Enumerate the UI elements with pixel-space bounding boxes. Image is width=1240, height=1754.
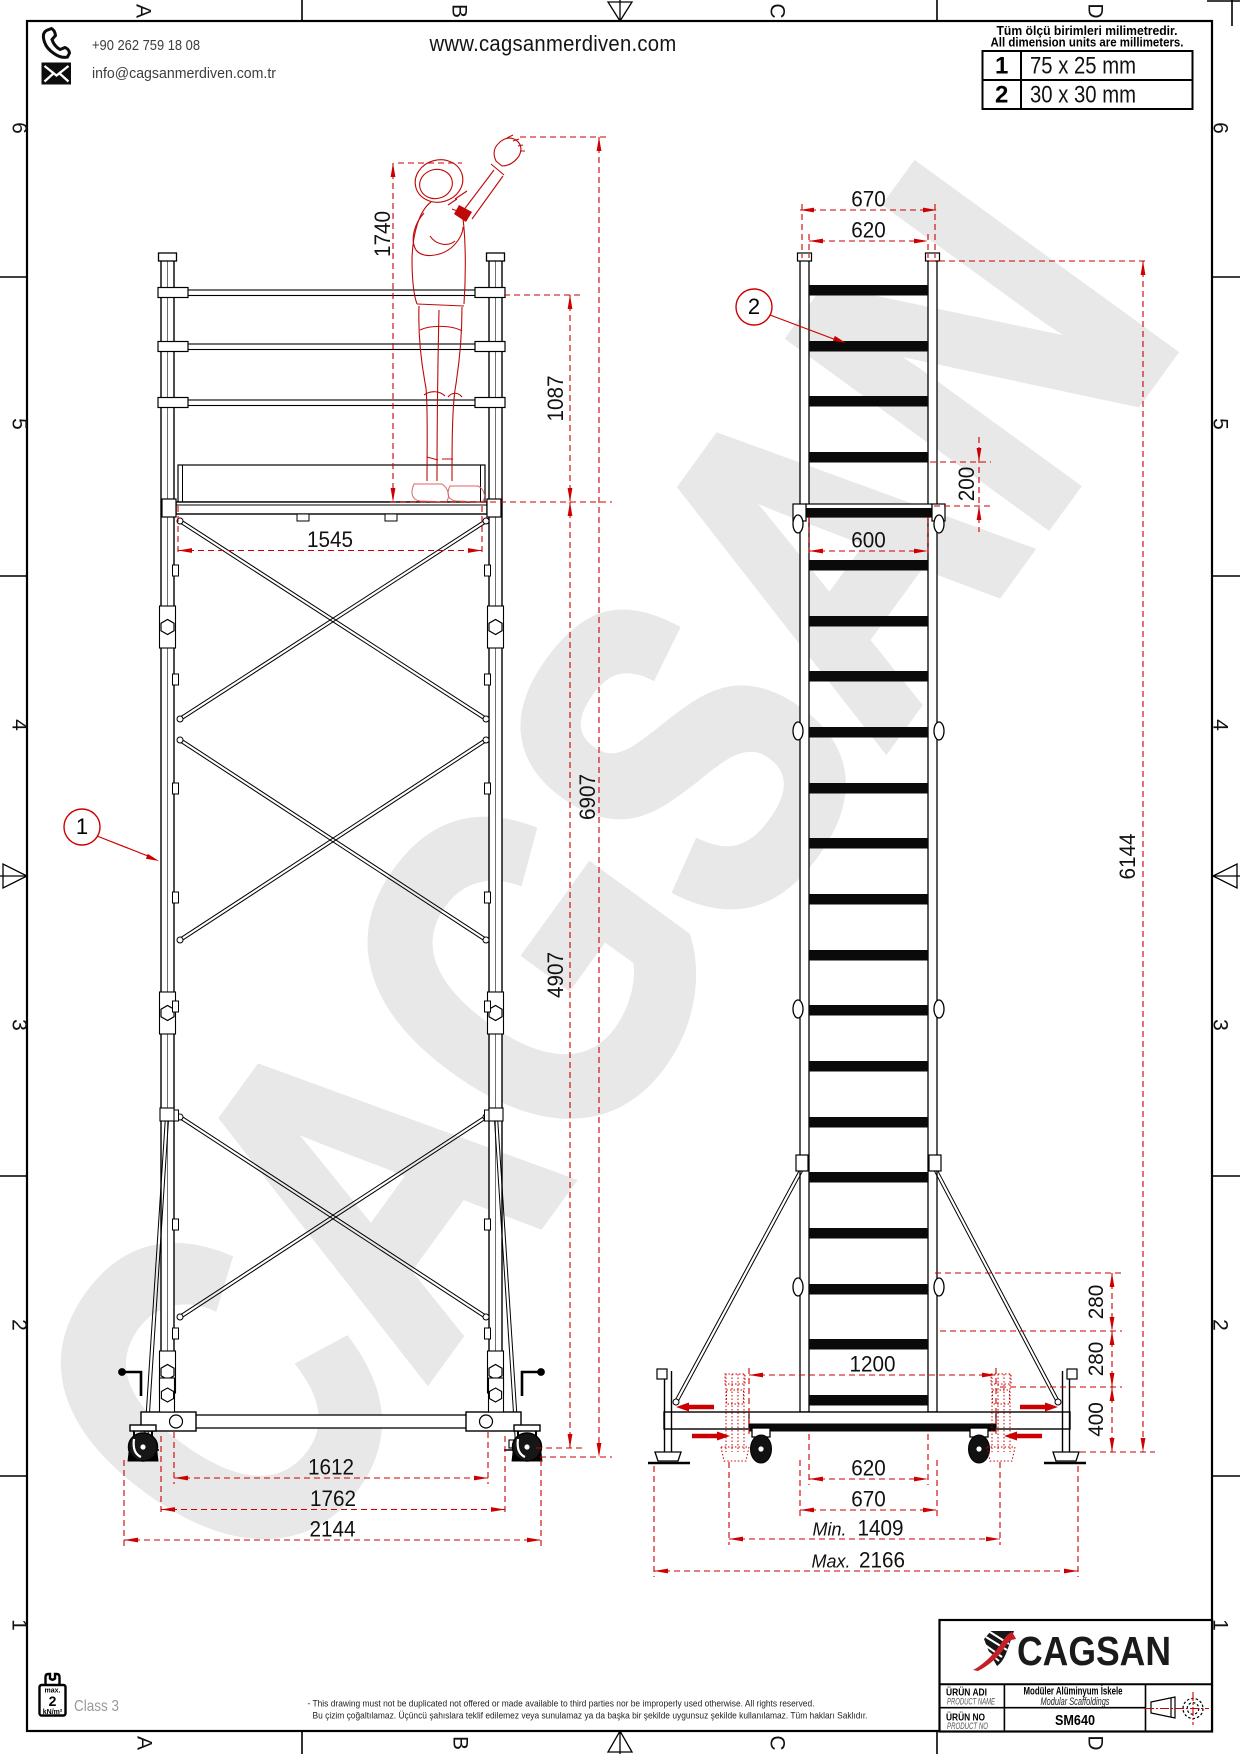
- svg-text:- This drawing must not be dup: - This drawing must not be duplicated no…: [308, 1699, 815, 1710]
- svg-text:2: 2: [8, 1319, 31, 1331]
- svg-text:1762: 1762: [310, 1486, 356, 1511]
- svg-text:SM640: SM640: [1055, 1713, 1095, 1729]
- svg-text:6144: 6144: [1115, 834, 1140, 880]
- svg-text:3: 3: [1209, 1019, 1232, 1031]
- svg-text:Bu çizim çoğaltılamaz. Üçüncü: Bu çizim çoğaltılamaz. Üçüncü şahıslara …: [313, 1711, 868, 1722]
- svg-text:All dimension units are millim: All dimension units are millimeters.: [991, 35, 1184, 50]
- svg-text:+90 262 759 18 08: +90 262 759 18 08: [92, 37, 200, 54]
- svg-text:670: 670: [851, 1487, 886, 1512]
- svg-text:CAGSAN: CAGSAN: [1017, 1628, 1171, 1674]
- svg-text:Class 3: Class 3: [74, 1698, 119, 1715]
- svg-text:PRODUCT NO: PRODUCT NO: [947, 1721, 988, 1731]
- svg-text:6: 6: [1209, 122, 1232, 134]
- svg-text:280: 280: [1085, 1342, 1108, 1377]
- svg-text:PRODUCT NAME: PRODUCT NAME: [947, 1696, 996, 1706]
- svg-text:1545: 1545: [307, 527, 353, 552]
- svg-text:1: 1: [8, 1619, 31, 1631]
- svg-text:1: 1: [995, 53, 1008, 80]
- svg-text:2: 2: [748, 294, 760, 319]
- svg-text:2166: 2166: [859, 1548, 905, 1573]
- svg-text:D: D: [1084, 3, 1107, 18]
- svg-text:C: C: [766, 3, 789, 18]
- svg-text:620: 620: [851, 1456, 886, 1481]
- svg-text:1740: 1740: [370, 211, 395, 257]
- svg-text:Max.: Max.: [811, 1552, 850, 1572]
- svg-text:30 x 30 mm: 30 x 30 mm: [1030, 82, 1136, 109]
- svg-text:75 x 25 mm: 75 x 25 mm: [1030, 53, 1136, 80]
- svg-text:2: 2: [1209, 1319, 1232, 1331]
- svg-text:B: B: [448, 4, 471, 18]
- svg-text:1409: 1409: [858, 1516, 904, 1541]
- svg-text:2: 2: [49, 1693, 57, 1709]
- svg-text:6: 6: [8, 122, 31, 134]
- svg-text:kN/m²: kN/m²: [43, 1709, 63, 1716]
- svg-text:1: 1: [76, 814, 88, 839]
- svg-text:A: A: [133, 1736, 156, 1750]
- svg-text:Min.: Min.: [812, 1520, 846, 1540]
- svg-text:1200: 1200: [850, 1352, 896, 1377]
- svg-text:600: 600: [851, 528, 886, 553]
- svg-text:1087: 1087: [543, 376, 568, 422]
- svg-text:2144: 2144: [310, 1517, 356, 1542]
- svg-text:C: C: [766, 1735, 789, 1750]
- svg-text:400: 400: [1085, 1402, 1108, 1437]
- svg-text:5: 5: [1209, 418, 1232, 430]
- svg-text:4: 4: [1209, 719, 1232, 731]
- svg-text:D: D: [1084, 1735, 1107, 1750]
- svg-text:B: B: [449, 1736, 472, 1750]
- svg-text:6907: 6907: [575, 774, 600, 820]
- svg-text:670: 670: [851, 187, 886, 212]
- svg-text:620: 620: [851, 218, 886, 243]
- svg-text:1612: 1612: [308, 1455, 354, 1480]
- svg-text:5: 5: [8, 418, 31, 430]
- svg-text:2: 2: [995, 82, 1008, 109]
- svg-text:3: 3: [8, 1019, 31, 1031]
- svg-text:280: 280: [1085, 1285, 1108, 1320]
- svg-text:A: A: [132, 4, 155, 18]
- svg-text:www.cagsanmerdiven.com: www.cagsanmerdiven.com: [429, 31, 677, 56]
- svg-text:Modular Scaffoldings: Modular Scaffoldings: [1041, 1696, 1110, 1708]
- svg-text:info@cagsanmerdiven.com.tr: info@cagsanmerdiven.com.tr: [92, 65, 276, 82]
- svg-text:4: 4: [8, 719, 31, 731]
- svg-text:200: 200: [954, 467, 979, 502]
- svg-text:4907: 4907: [543, 952, 568, 998]
